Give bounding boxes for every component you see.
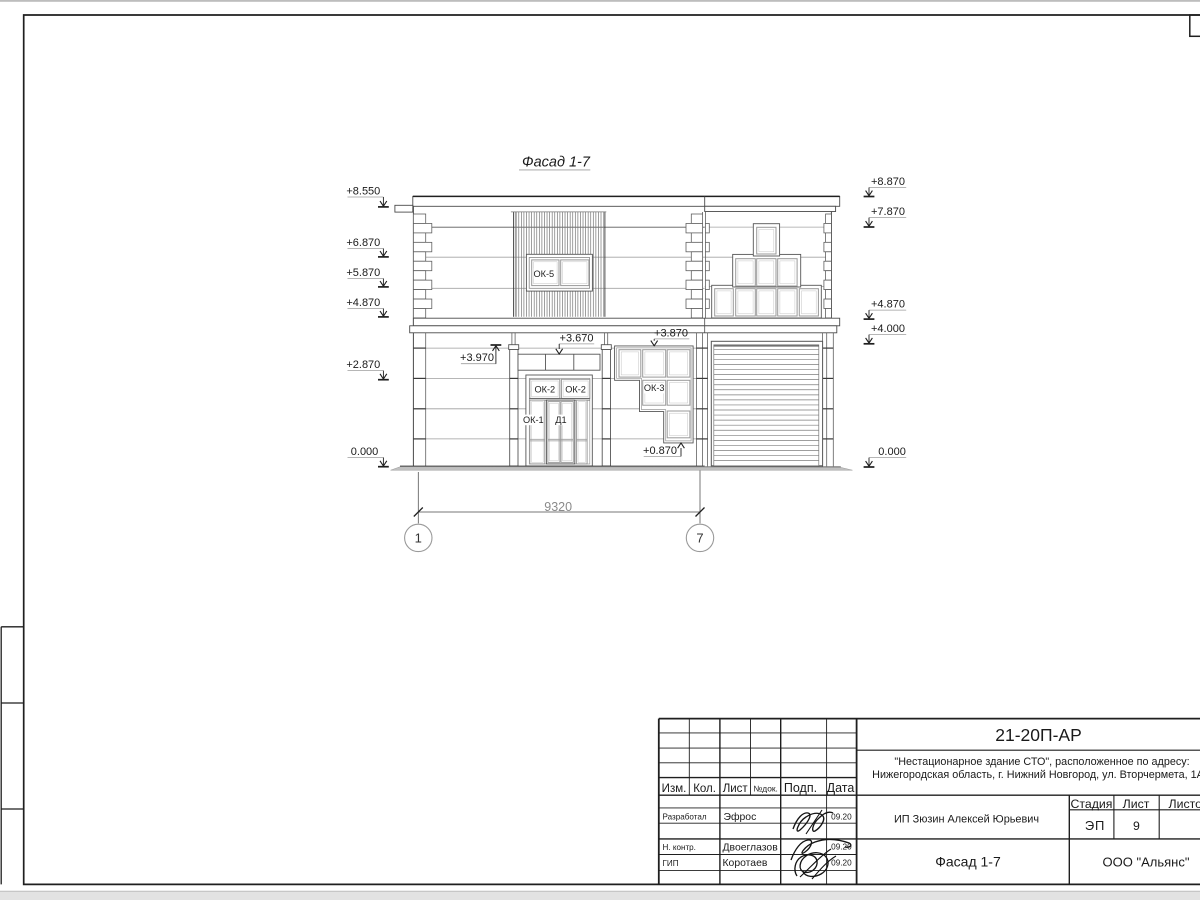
svg-text:№док.: №док. xyxy=(753,783,778,793)
svg-text:09.20: 09.20 xyxy=(831,813,852,822)
svg-text:0.000: 0.000 xyxy=(351,446,379,458)
svg-text:ОК-2: ОК-2 xyxy=(534,385,555,395)
svg-text:ОК-2: ОК-2 xyxy=(565,385,586,395)
svg-text:Д1: Д1 xyxy=(555,415,566,425)
svg-text:7: 7 xyxy=(696,531,703,546)
svg-text:Листов: Листов xyxy=(1169,797,1200,811)
svg-text:+4.870: +4.870 xyxy=(871,299,905,311)
svg-text:ЭП: ЭП xyxy=(1085,818,1105,833)
svg-text:+3.670: +3.670 xyxy=(560,332,594,344)
svg-text:ИП Зюзин Алексей Юрьевич: ИП Зюзин Алексей Юрьевич xyxy=(894,814,1039,826)
svg-text:Дата: Дата xyxy=(827,781,855,795)
svg-text:+3.970: +3.970 xyxy=(460,352,494,364)
svg-text:+3.870: +3.870 xyxy=(654,327,688,339)
svg-text:+4.000: +4.000 xyxy=(871,323,905,335)
svg-text:ООО "Альянс": ООО "Альянс" xyxy=(1103,855,1190,870)
svg-text:Стадия: Стадия xyxy=(1071,797,1113,811)
svg-text:Разработал: Разработал xyxy=(663,813,707,822)
svg-text:Кол.: Кол. xyxy=(693,783,716,795)
svg-text:Коротаев: Коротаев xyxy=(723,858,768,869)
svg-text:Н. контр.: Н. контр. xyxy=(663,843,696,852)
svg-text:ОК-5: ОК-5 xyxy=(533,269,554,279)
svg-text:Двоеглазов: Двоеглазов xyxy=(723,842,779,853)
svg-text:ГИП: ГИП xyxy=(663,859,679,868)
svg-text:"Нестационарное здание СТО", р: "Нестационарное здание СТО", расположенн… xyxy=(894,756,1189,768)
svg-text:09.20: 09.20 xyxy=(831,858,852,867)
svg-text:+8.550: +8.550 xyxy=(346,185,380,197)
svg-text:+5.870: +5.870 xyxy=(346,267,380,279)
svg-text:Изм.: Изм. xyxy=(662,783,687,795)
svg-text:21-20П-АР: 21-20П-АР xyxy=(995,725,1082,745)
svg-text:+6.870: +6.870 xyxy=(346,237,380,249)
svg-text:ОК-3: ОК-3 xyxy=(644,383,665,393)
svg-text:+4.870: +4.870 xyxy=(346,297,380,309)
svg-text:Лист: Лист xyxy=(1123,797,1150,811)
svg-text:+8.870: +8.870 xyxy=(871,176,905,188)
svg-text:Нижегородская область, г. Нижн: Нижегородская область, г. Нижний Новгоро… xyxy=(872,769,1200,781)
svg-text:9: 9 xyxy=(1133,819,1140,833)
svg-text:+0.870: +0.870 xyxy=(643,445,677,457)
svg-text:Эфрос: Эфрос xyxy=(724,811,757,823)
svg-text:Фасад 1-7: Фасад 1-7 xyxy=(935,854,1001,870)
svg-text:Лист: Лист xyxy=(723,783,749,795)
svg-text:+2.870: +2.870 xyxy=(346,359,380,371)
svg-text:Подп.: Подп. xyxy=(784,781,817,795)
svg-text:1: 1 xyxy=(415,531,422,546)
svg-text:0.000: 0.000 xyxy=(878,446,906,458)
svg-text:ОК-1: ОК-1 xyxy=(523,415,544,425)
svg-text:9320: 9320 xyxy=(544,500,572,514)
svg-text:Фасад 1-7: Фасад 1-7 xyxy=(522,155,591,171)
svg-text:+7.870: +7.870 xyxy=(871,206,905,218)
